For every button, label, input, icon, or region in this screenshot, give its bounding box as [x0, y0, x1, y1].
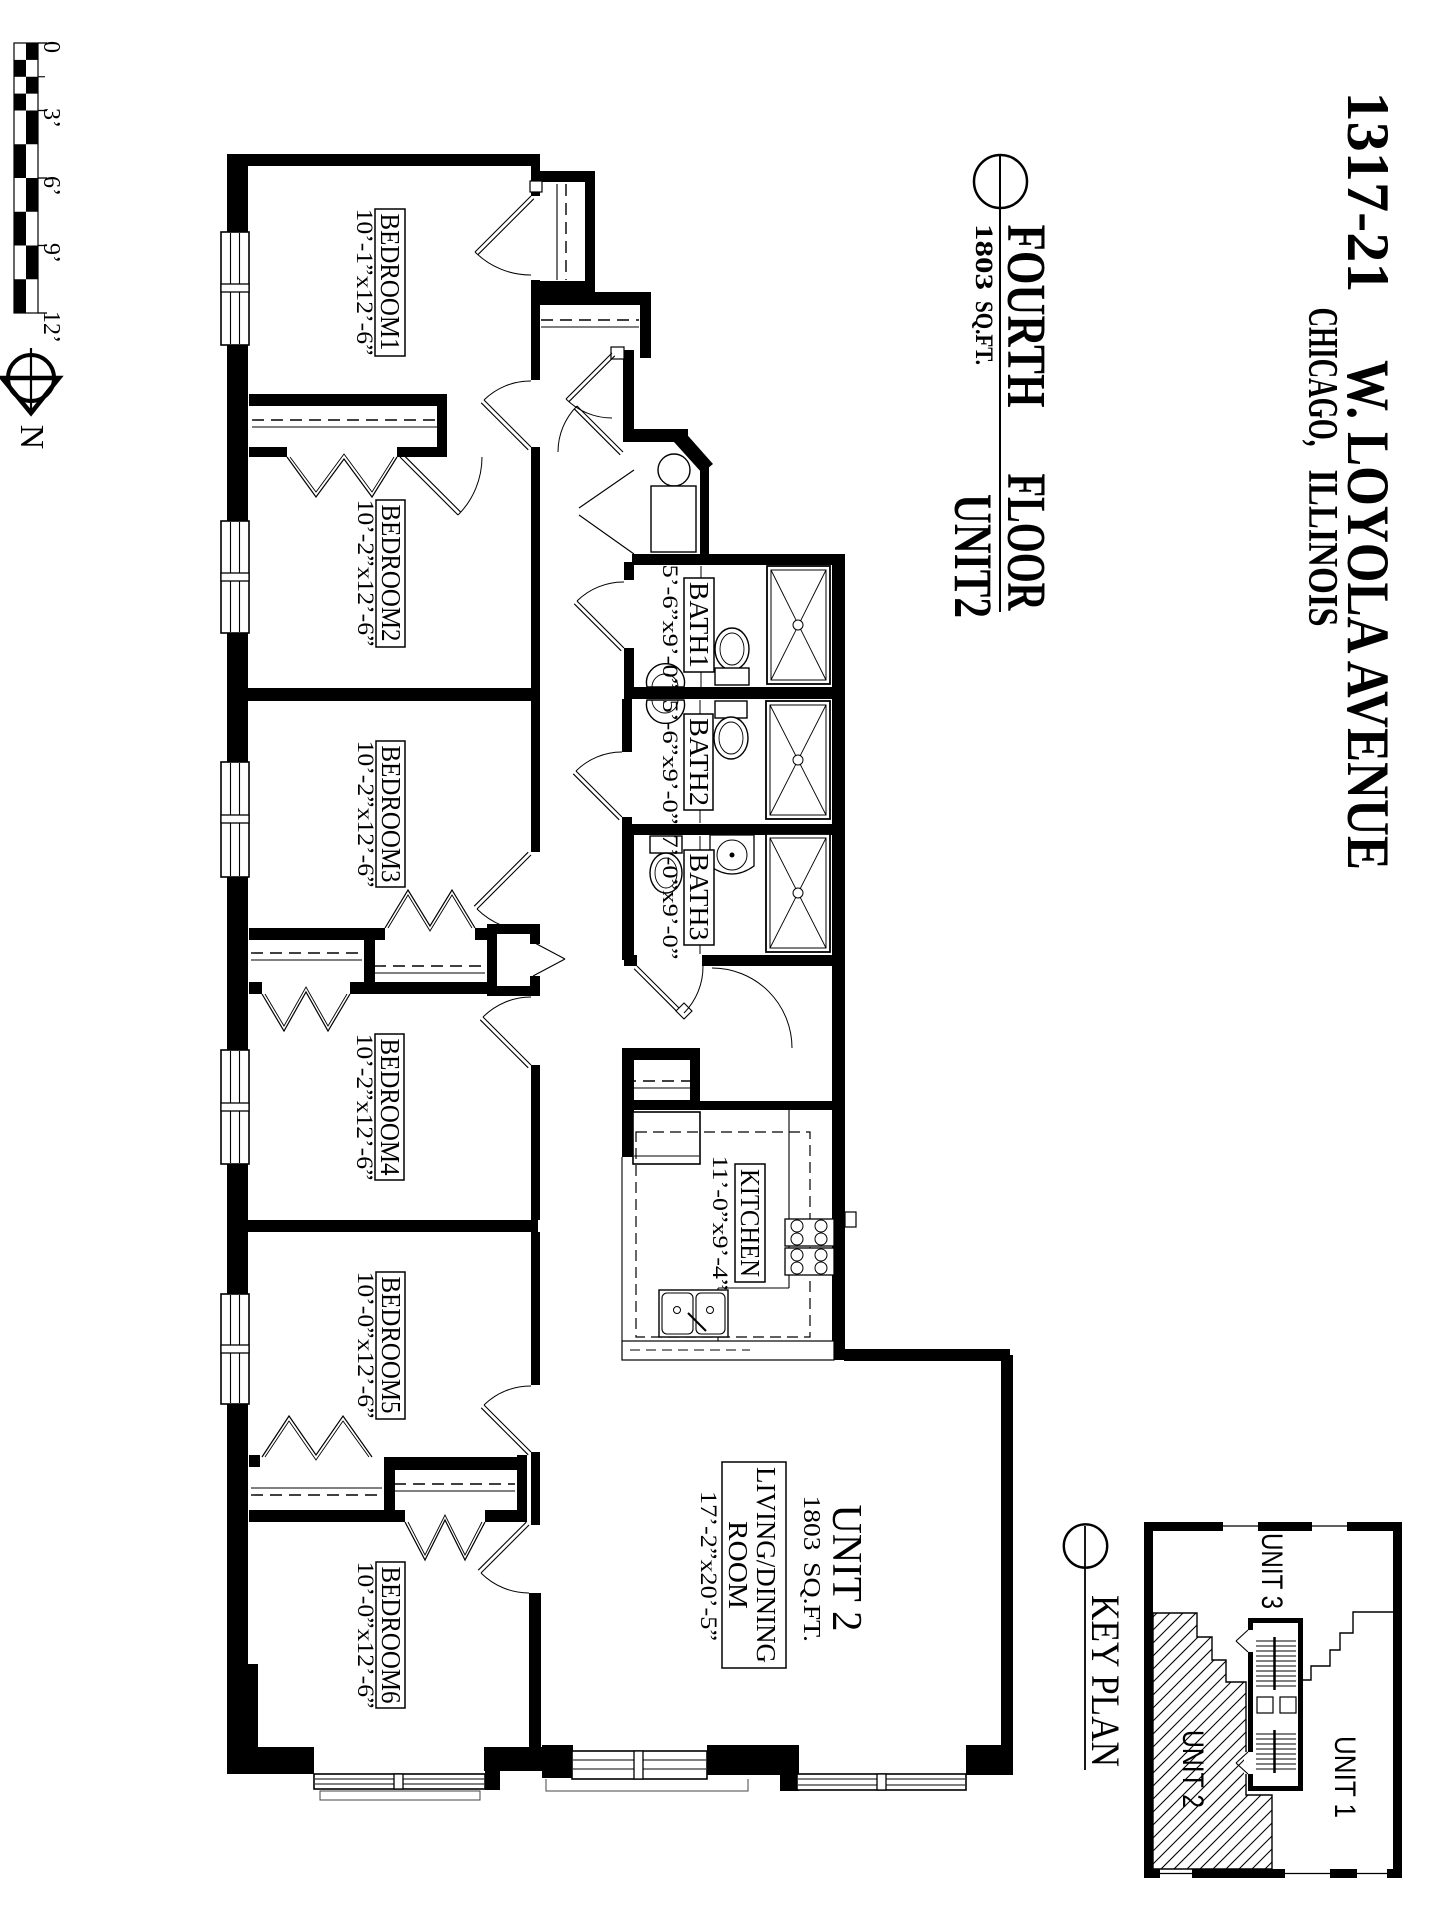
- svg-text:7’-0”x9’-0”: 7’-0”x9’-0”: [658, 835, 683, 960]
- svg-text:UNIT 3: UNIT 3: [1255, 1533, 1288, 1609]
- svg-text:ILLINOIS: ILLINOIS: [1299, 470, 1345, 627]
- svg-text:10’-0”x12’-6”: 10’-0”x12’-6”: [353, 1562, 378, 1709]
- svg-text:6’: 6’: [38, 176, 64, 196]
- svg-text:BEDROOM5: BEDROOM5: [376, 1277, 406, 1414]
- svg-text:BATH3: BATH3: [684, 854, 714, 941]
- svg-text:BEDROOM2: BEDROOM2: [376, 505, 406, 642]
- svg-text:BEDROOM3: BEDROOM3: [376, 746, 406, 883]
- svg-text:12’: 12’: [38, 311, 64, 343]
- svg-text:10’-1”x12’-6”: 10’-1”x12’-6”: [352, 209, 377, 356]
- svg-text:UNIT 2: UNIT 2: [1176, 1730, 1209, 1808]
- svg-text:BEDROOM6: BEDROOM6: [376, 1567, 406, 1704]
- svg-text:5’-6”x9’-0”: 5’-6”x9’-0”: [658, 700, 683, 825]
- svg-text:BATH1: BATH1: [684, 582, 714, 668]
- svg-text:KITCHEN: KITCHEN: [735, 1169, 765, 1277]
- svg-text:UNIT2: UNIT2: [943, 494, 1003, 618]
- svg-text:UNIT 1: UNIT 1: [1328, 1736, 1361, 1818]
- svg-text:SQ.FT.: SQ.FT.: [970, 301, 997, 365]
- svg-text:17’-2”x20’-5”: 17’-2”x20’-5”: [696, 1491, 721, 1641]
- svg-text:10’-0”x12’-6”: 10’-0”x12’-6”: [353, 1272, 378, 1419]
- svg-text:9’: 9’: [38, 243, 64, 263]
- svg-text:0: 0: [38, 41, 64, 53]
- svg-text:BATH2: BATH2: [684, 718, 714, 806]
- svg-text:KEY PLAN: KEY PLAN: [1083, 1595, 1128, 1767]
- svg-text:FLOOR: FLOOR: [996, 474, 1057, 612]
- svg-text:1803: 1803: [798, 1496, 824, 1551]
- svg-text:3’: 3’: [38, 108, 64, 128]
- svg-text:10’-2”x12’-6”: 10’-2”x12’-6”: [353, 500, 378, 647]
- svg-text:10’-2”x12’-6”: 10’-2”x12’-6”: [352, 1034, 377, 1181]
- svg-text:BEDROOM1: BEDROOM1: [375, 214, 405, 351]
- svg-text:BEDROOM4: BEDROOM4: [375, 1039, 405, 1176]
- svg-text:N: N: [13, 425, 50, 450]
- svg-text:LIVING/DINING: LIVING/DINING: [751, 1467, 781, 1663]
- svg-text:UNIT 2: UNIT 2: [823, 1505, 869, 1632]
- svg-text:ROOM: ROOM: [723, 1521, 753, 1609]
- svg-text:11’-0”x9’-4”: 11’-0”x9’-4”: [708, 1156, 733, 1291]
- svg-text:1803: 1803: [970, 224, 997, 290]
- svg-text:SQ.FT.: SQ.FT.: [798, 1562, 824, 1642]
- svg-text:10’-2”x12’-6”: 10’-2”x12’-6”: [353, 741, 378, 888]
- svg-text:1317-21: 1317-21: [1335, 92, 1401, 293]
- svg-text:5’-6”x9’-0”: 5’-6”x9’-0”: [658, 565, 683, 690]
- svg-text:CHICAGO,: CHICAGO,: [1299, 308, 1345, 447]
- svg-text:FOURTH: FOURTH: [996, 225, 1057, 408]
